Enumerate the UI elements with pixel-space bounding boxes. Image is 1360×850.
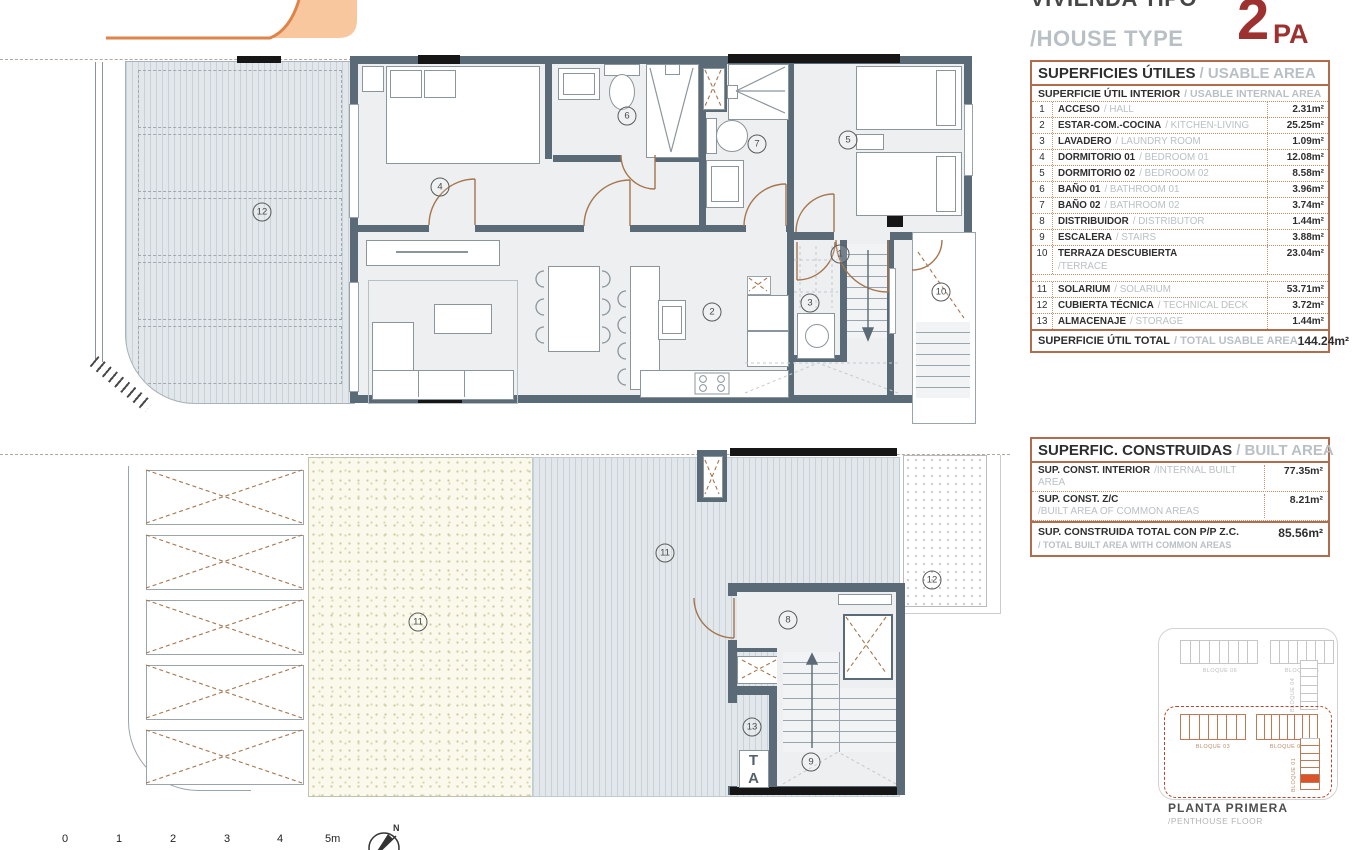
- room-label-13: 13: [743, 718, 762, 737]
- room-label-12: 12: [253, 203, 272, 222]
- room-label-8: 8: [779, 611, 798, 630]
- room-label-1: 1: [831, 245, 850, 264]
- room-label-10: 10: [932, 283, 951, 302]
- room-label-4: 4: [431, 178, 450, 197]
- room-label-9: 9: [802, 753, 821, 772]
- room-label-12: 12: [923, 571, 942, 590]
- room-label-11: 11: [656, 544, 675, 563]
- room-label-2: 2: [703, 303, 722, 322]
- floorplan-sheet: VIVIENDA TIPO /HOUSE TYPE 2 PA SUPERFICI…: [0, 0, 1360, 850]
- room-label-5: 5: [839, 131, 858, 150]
- room-label-6: 6: [618, 107, 637, 126]
- room-labels: 123456710128911111213: [0, 0, 1360, 850]
- room-label-7: 7: [748, 135, 767, 154]
- room-label-3: 3: [801, 294, 820, 313]
- room-label-11: 11: [409, 613, 428, 632]
